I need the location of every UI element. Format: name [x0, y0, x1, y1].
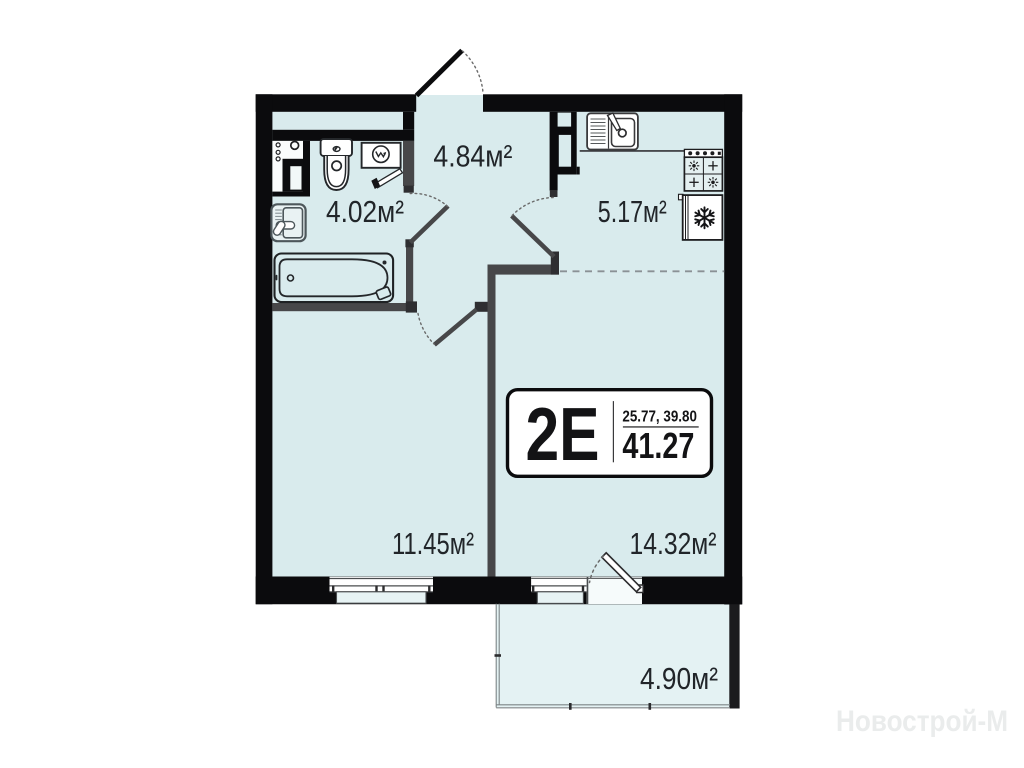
svg-text:4.84м²: 4.84м² [433, 140, 512, 174]
svg-text:5.17м²: 5.17м² [598, 195, 667, 229]
svg-text:14.32м²: 14.32м² [630, 527, 717, 561]
svg-text:25.77, 39.80: 25.77, 39.80 [622, 409, 697, 426]
svg-text:11.45м²: 11.45м² [392, 527, 474, 561]
svg-text:41.27: 41.27 [622, 425, 694, 466]
svg-text:4.02м²: 4.02м² [326, 195, 404, 229]
svg-text:2E: 2E [526, 392, 600, 476]
svg-text:4.90м²: 4.90м² [640, 662, 718, 696]
svg-text:Новострой-М: Новострой-М [836, 705, 1008, 738]
